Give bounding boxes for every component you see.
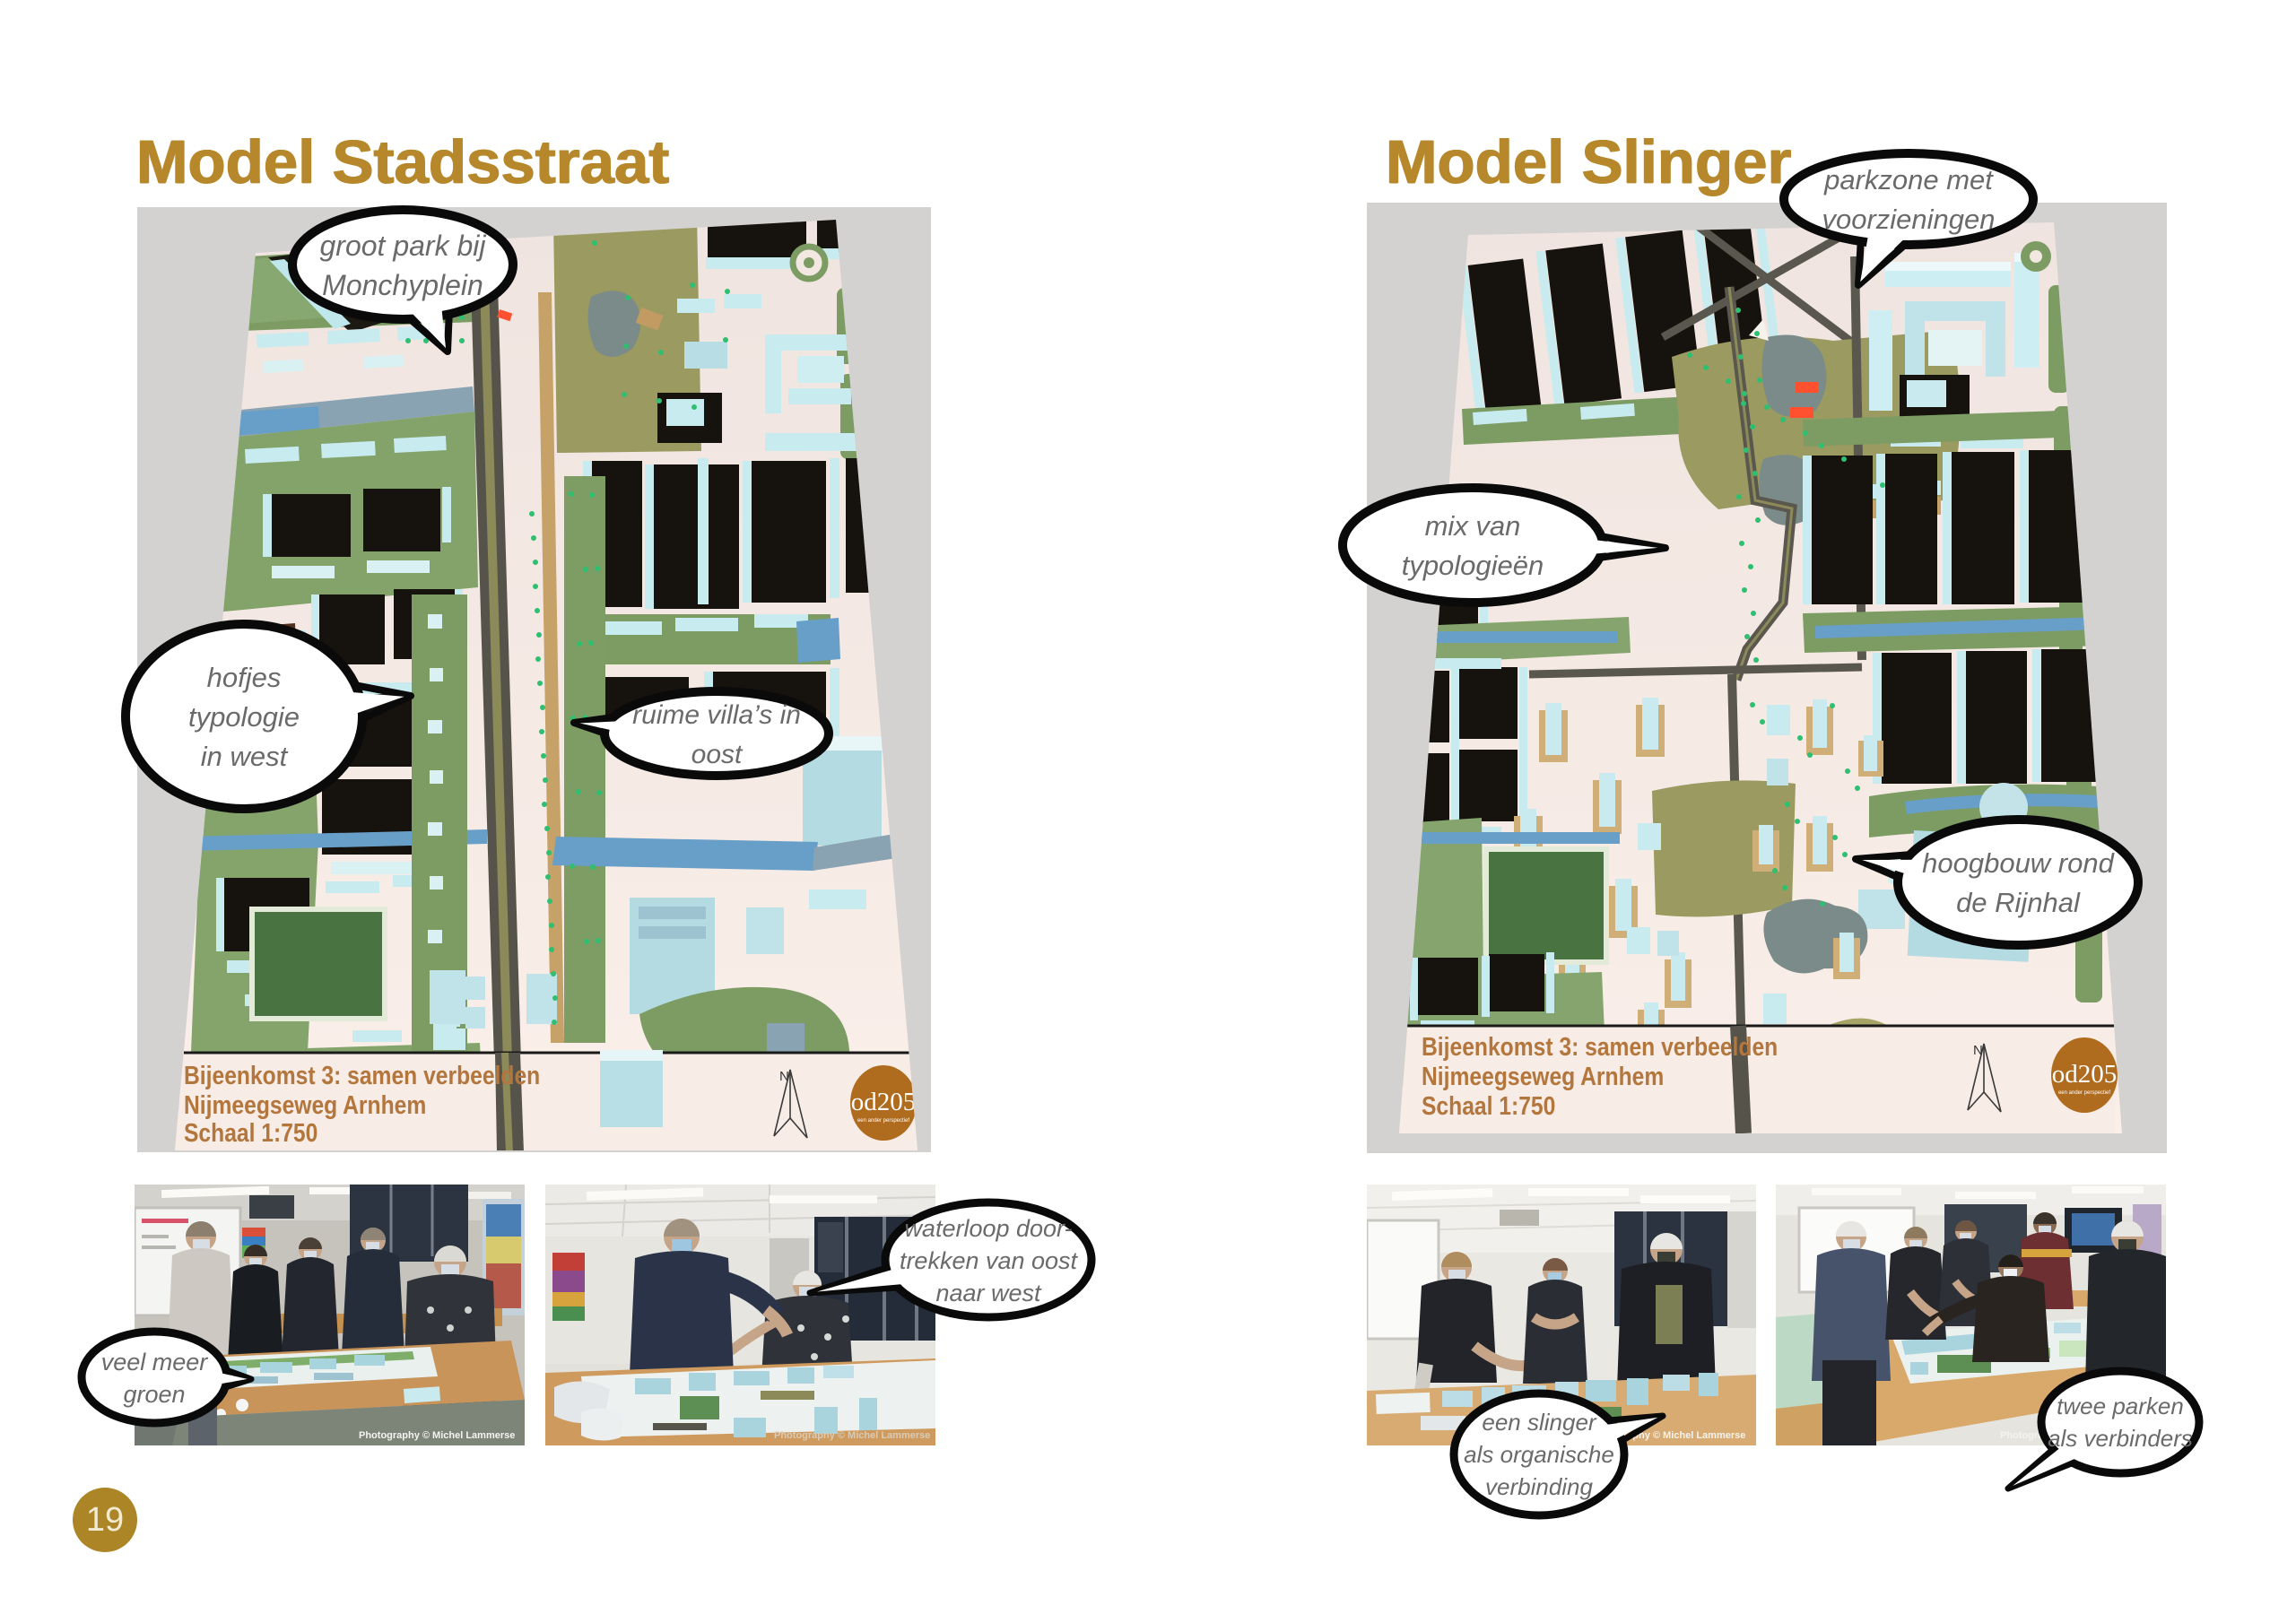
svg-text:hoogbouw rond: hoogbouw rond xyxy=(1922,847,2115,879)
svg-text:Monchyplein: Monchyplein xyxy=(322,269,483,301)
svg-text:naar west: naar west xyxy=(935,1280,1042,1306)
svg-text:voorzieningen: voorzieningen xyxy=(1822,204,1995,235)
svg-text:groen: groen xyxy=(123,1381,185,1408)
svg-text:groot park bij: groot park bij xyxy=(320,230,487,262)
svg-text:als verbinders: als verbinders xyxy=(2048,1425,2193,1452)
svg-text:verbinding: verbinding xyxy=(1485,1473,1594,1500)
svg-text:de Rijnhal: de Rijnhal xyxy=(1956,887,2081,918)
svg-text:oost: oost xyxy=(691,740,744,769)
svg-text:in west: in west xyxy=(201,741,289,772)
svg-text:een slinger: een slinger xyxy=(1482,1409,1597,1436)
svg-text:hofjes: hofjes xyxy=(207,662,282,693)
svg-text:veel meer: veel meer xyxy=(101,1349,209,1376)
svg-text:typologieën: typologieën xyxy=(1402,550,1544,581)
svg-text:waterloop door-: waterloop door- xyxy=(904,1215,1072,1242)
svg-text:twee parken: twee parken xyxy=(2057,1393,2184,1419)
svg-text:als organische: als organische xyxy=(1464,1441,1614,1468)
svg-text:parkzone met: parkzone met xyxy=(1823,164,1994,195)
svg-text:mix van: mix van xyxy=(1425,510,1521,542)
svg-text:ruime villa’s in: ruime villa’s in xyxy=(632,700,801,730)
svg-text:trekken van oost: trekken van oost xyxy=(900,1247,1079,1274)
svg-text:typologie: typologie xyxy=(188,701,300,733)
